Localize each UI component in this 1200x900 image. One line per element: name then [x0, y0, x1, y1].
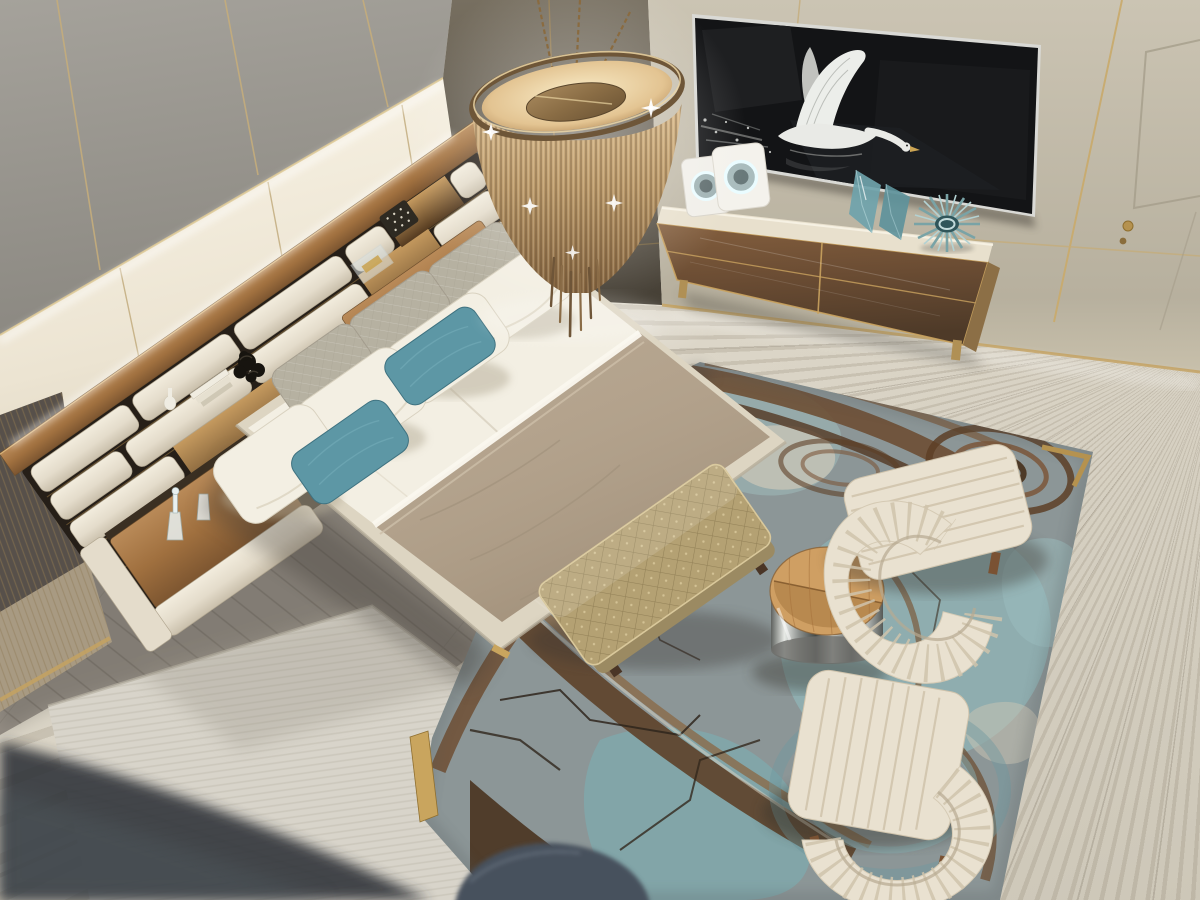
door-knob-lower: [1120, 238, 1127, 245]
bedroom-photo: [0, 0, 1200, 900]
chandelier-floor-pool: [480, 294, 670, 342]
door-knob: [1123, 221, 1133, 231]
mini-vase: [164, 396, 176, 410]
scene-svg: [0, 0, 1200, 900]
chair-seat: [785, 667, 973, 843]
mini-vase-neck: [168, 388, 172, 397]
